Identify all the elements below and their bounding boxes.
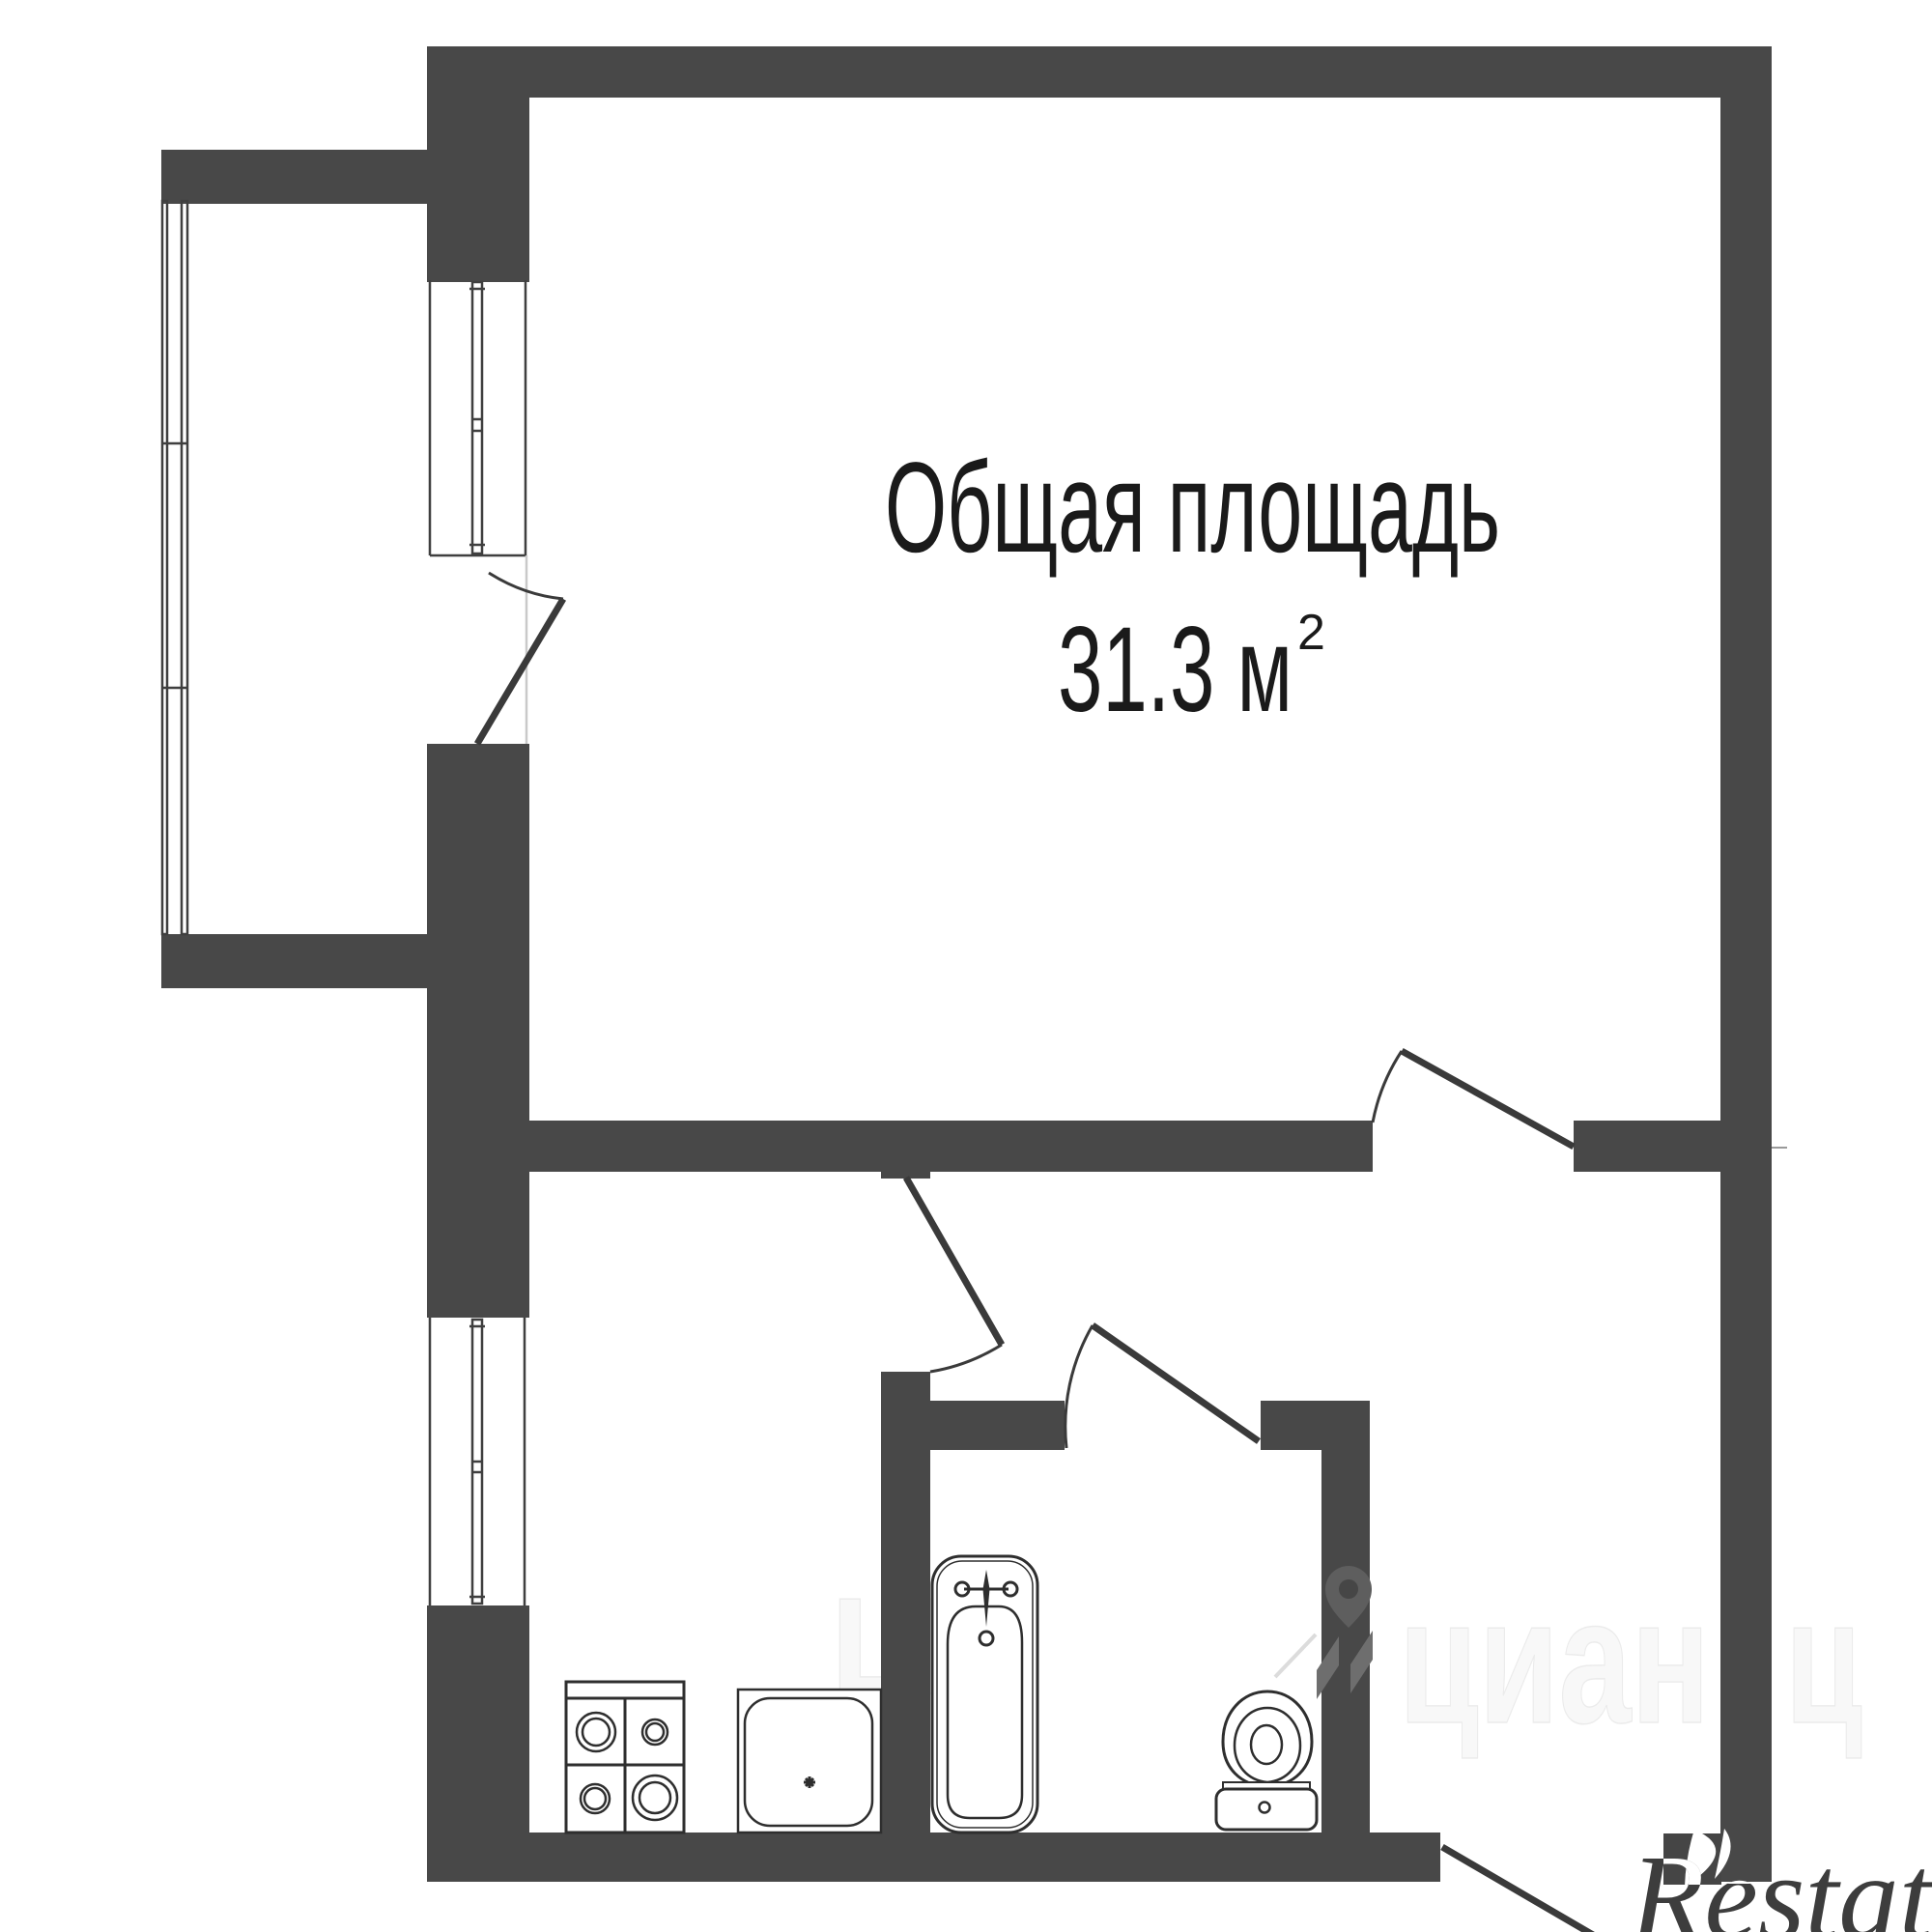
svg-text:Общая площадь: Общая площадь bbox=[885, 437, 1500, 580]
svg-text:ц: ц bbox=[1785, 1562, 1862, 1761]
svg-text:31.3 м: 31.3 м bbox=[1058, 603, 1293, 737]
svg-text:2: 2 bbox=[1297, 605, 1325, 661]
svg-text:циан: циан bbox=[1399, 1562, 1710, 1761]
